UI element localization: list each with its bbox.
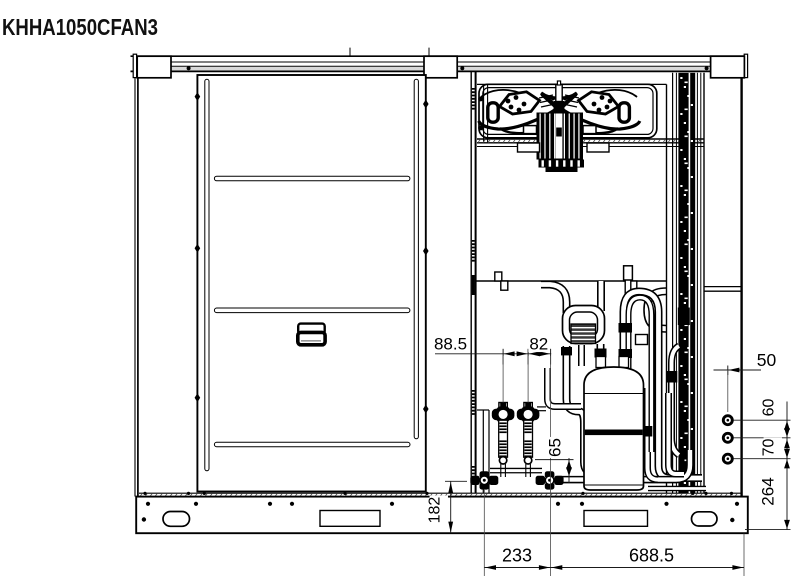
svg-text:50: 50	[757, 350, 777, 370]
svg-text:65: 65	[546, 438, 565, 457]
svg-text:88.5: 88.5	[434, 335, 467, 354]
svg-text:KHHA1050CFAN3: KHHA1050CFAN3	[2, 14, 158, 40]
svg-text:82: 82	[529, 335, 548, 354]
svg-text:70: 70	[761, 439, 778, 457]
svg-text:264: 264	[759, 477, 778, 505]
svg-text:182: 182	[427, 497, 444, 524]
svg-text:60: 60	[761, 399, 778, 417]
svg-text:688.5: 688.5	[629, 546, 674, 566]
svg-text:233: 233	[502, 546, 532, 566]
